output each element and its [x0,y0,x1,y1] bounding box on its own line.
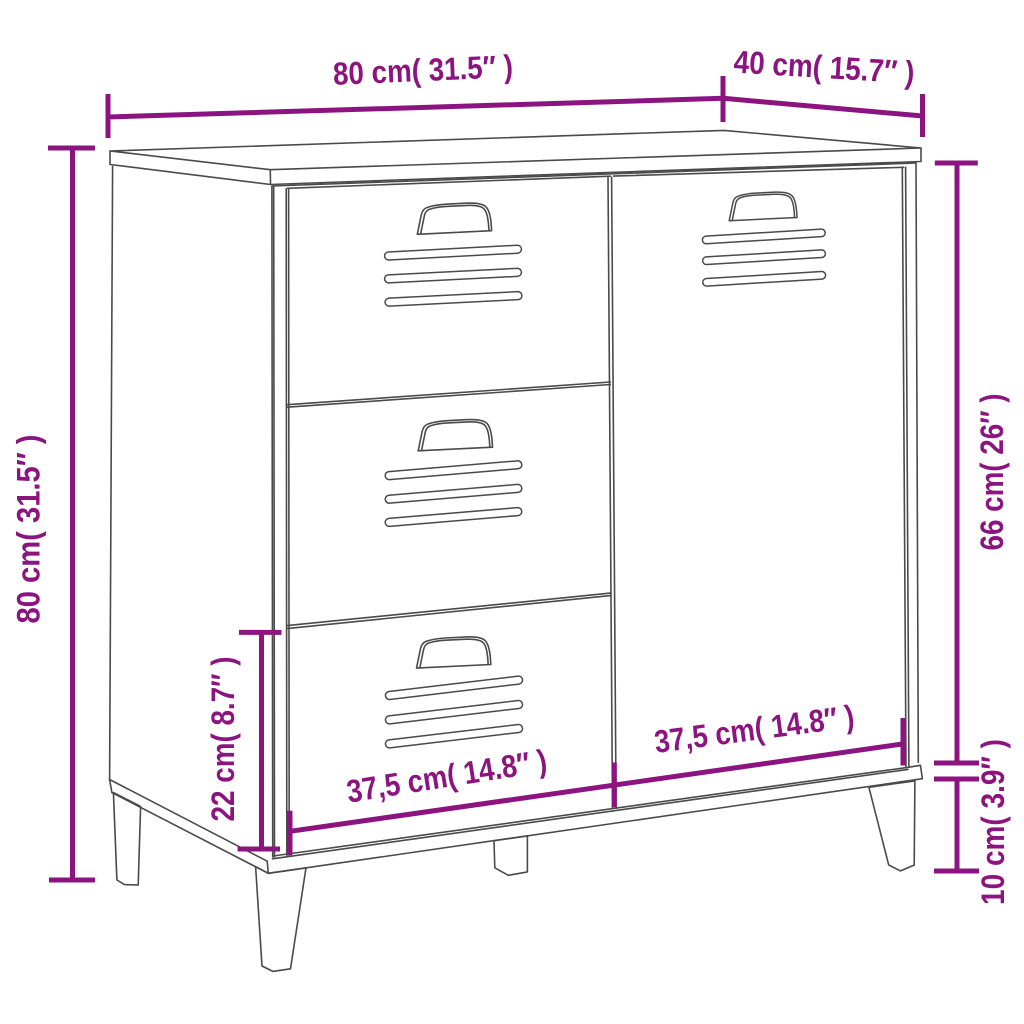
svg-text:22 cm( 8.7″ ): 22 cm( 8.7″ ) [205,657,241,822]
svg-text:10 cm( 3.9″ ): 10 cm( 3.9″ ) [975,739,1011,905]
svg-text:80 cm( 31.5″ ): 80 cm( 31.5″ ) [11,435,47,624]
svg-text:66 cm( 26″ ): 66 cm( 26″ ) [974,394,1010,551]
